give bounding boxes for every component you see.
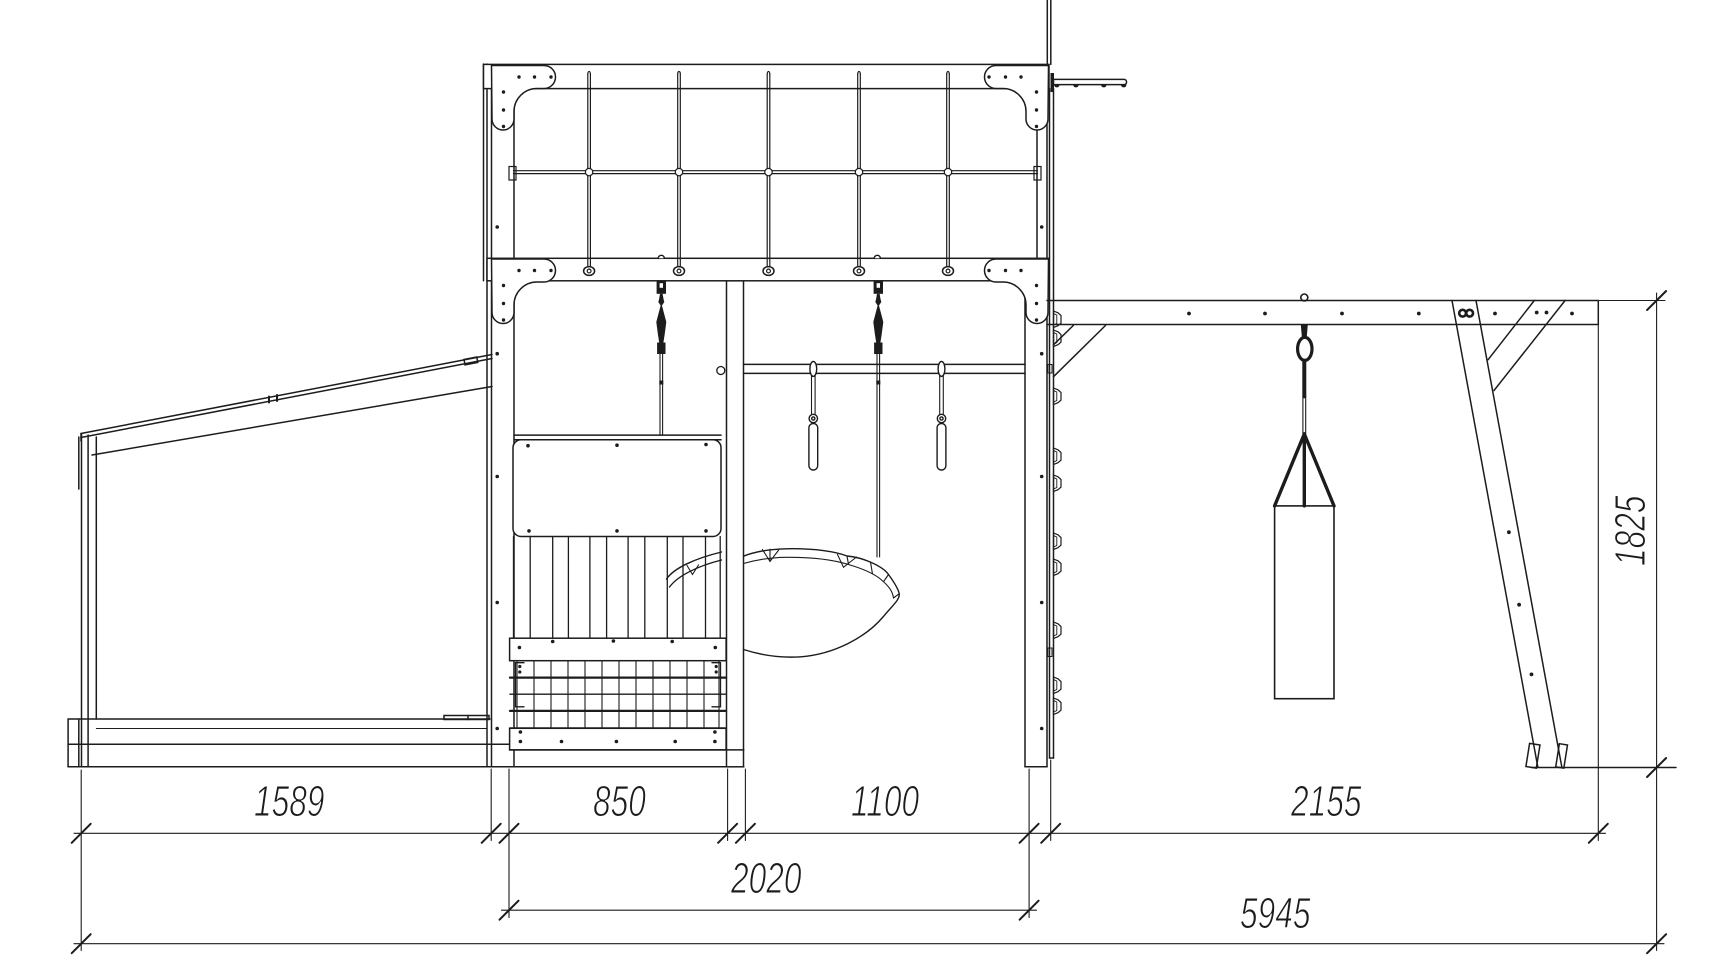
svg-text:1589: 1589 bbox=[254, 777, 324, 826]
svg-text:2155: 2155 bbox=[1290, 777, 1362, 826]
svg-text:2020: 2020 bbox=[730, 854, 801, 903]
svg-text:850: 850 bbox=[593, 777, 646, 826]
svg-text:5945: 5945 bbox=[1240, 889, 1311, 938]
svg-text:1100: 1100 bbox=[851, 777, 919, 826]
svg-text:1825: 1825 bbox=[1606, 495, 1655, 566]
